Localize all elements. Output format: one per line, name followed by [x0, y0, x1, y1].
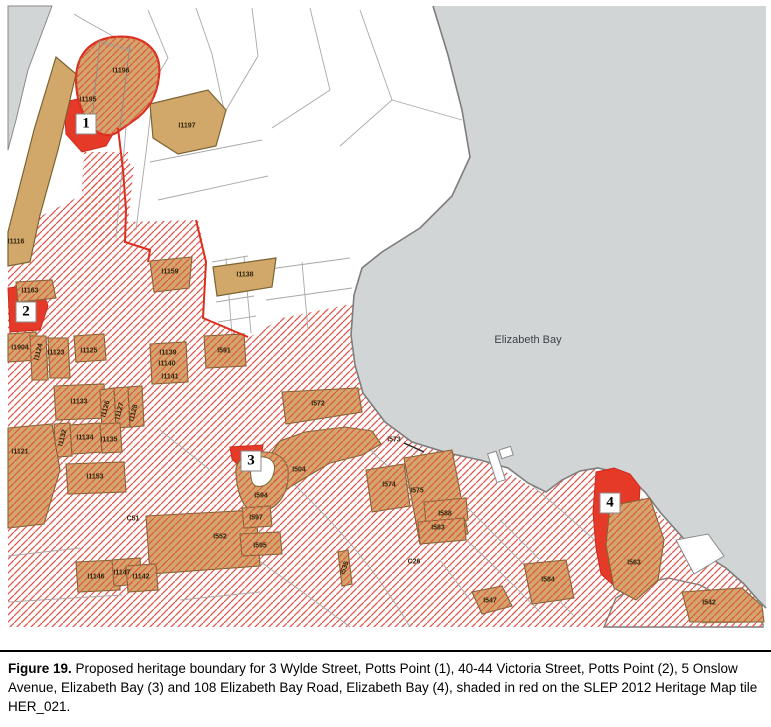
- figure-caption: Figure 19. Proposed heritage boundary fo…: [0, 650, 771, 716]
- heritage-map-svg: [0, 0, 771, 648]
- document-page: Elizabeth Bay Wylde Street I1196I1195I11…: [0, 0, 771, 727]
- figure-caption-text: Proposed heritage boundary for 3 Wylde S…: [8, 661, 757, 714]
- figure-caption-label: Figure 19.: [8, 661, 72, 676]
- heritage-map: Elizabeth Bay Wylde Street I1196I1195I11…: [0, 0, 771, 648]
